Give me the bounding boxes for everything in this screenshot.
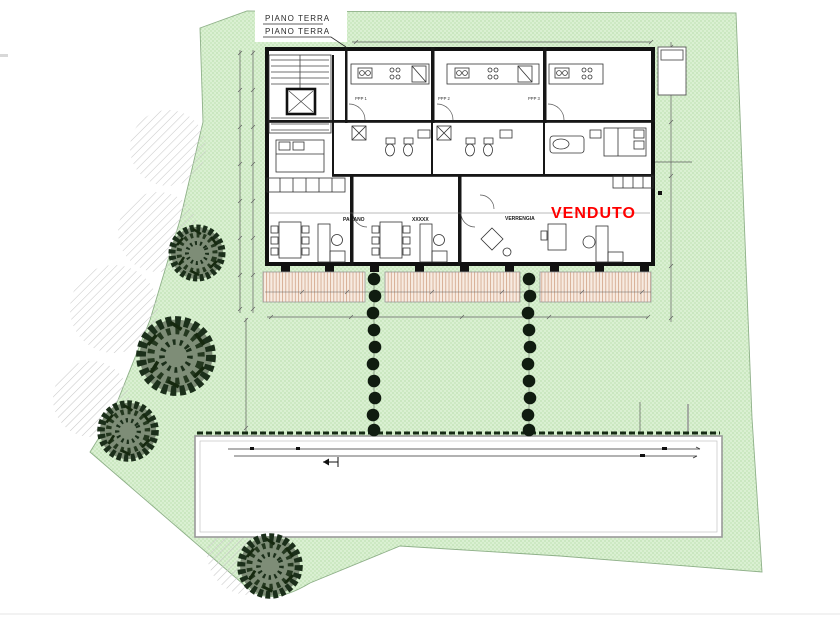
external-pad xyxy=(658,47,686,95)
edge-mark xyxy=(0,54,8,57)
building-floorplan xyxy=(265,47,686,272)
tree-symbol-3 xyxy=(100,403,156,459)
tree-symbol-2 xyxy=(140,320,213,393)
driveway xyxy=(195,433,722,537)
terrace-deck xyxy=(263,272,651,302)
site-plan-screenshot: PIANO TERRA PIANO TERRA xyxy=(0,0,840,630)
tree-symbol-4 xyxy=(240,536,300,596)
floor-title-line1: PIANO TERRA xyxy=(265,14,330,23)
tree-symbol-1 xyxy=(171,227,223,279)
site-plan-drawing: PIANO TERRA PIANO TERRA xyxy=(0,0,840,630)
unit-code-3: PPP 3 xyxy=(528,96,540,101)
unit-code-2: PPP 2 xyxy=(438,96,450,101)
owner-label-3: VERRENGIA xyxy=(505,216,535,222)
owner-label-2: XXXXX xyxy=(412,217,429,223)
owner-label-1: PAGANO xyxy=(343,217,365,223)
floor-title-line2: PIANO TERRA xyxy=(265,27,330,36)
sold-badge: VENDUTO xyxy=(551,205,636,222)
unit-code-1: PPP 1 xyxy=(355,96,367,101)
